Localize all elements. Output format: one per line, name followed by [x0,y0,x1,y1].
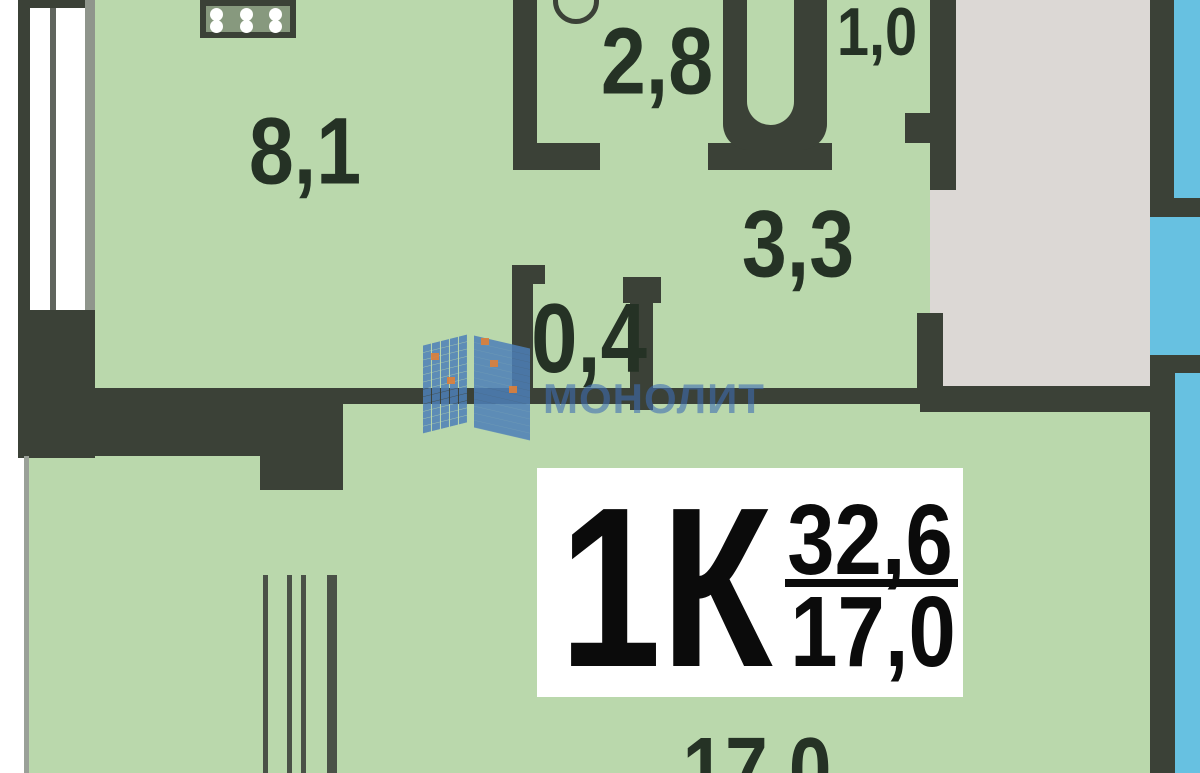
monolit-logo-accent [509,386,517,393]
right-wall-cap-top [1170,198,1200,217]
wardrobe-line [263,575,268,773]
closet-left-cap [512,265,545,284]
left-outer-wall-thin [24,456,29,773]
monolit-logo-accent [431,353,439,360]
vestibule-bottom-wall [920,386,1174,412]
monolit-logo [474,336,530,441]
wardrobe-line [287,575,292,773]
window-glass-line [50,8,56,310]
wc-right-wall [930,0,956,190]
wardrobe-line [327,575,337,773]
vestibule-door-jamb [917,313,943,390]
bathtub-icon [723,0,827,150]
watermark-text: МОНОЛИТ [543,378,765,420]
wardrobe-line [301,575,306,773]
apartment-type-label: 1К [560,474,773,702]
wc-area-label: 1,0 [837,0,917,66]
wall-pillar [260,456,343,490]
living-area-value: 17,0 [790,582,955,682]
wc-door-jamb [905,113,933,143]
stove-icon [200,0,296,38]
kitchen-area-label: 8,1 [249,105,361,200]
floor-plan: 8,1 2,8 1,0 3,3 0,4 17,0 МОНОЛИТ 1К 32,6… [0,0,1200,773]
kitchen-living-wall [22,388,343,456]
window-outer-frame [18,0,30,312]
right-outer-wall-bottom [1150,355,1175,773]
total-area-value: 32,6 [787,490,952,590]
bathroom-area-label: 2,8 [601,15,713,110]
right-outer-wall-top [1150,0,1174,217]
closet-area-label: 0,4 [531,289,647,387]
window-inner-jamb [85,0,95,312]
right-wall-cap-bottom [1174,355,1200,373]
window [30,8,85,310]
monolit-logo-accent [490,360,498,367]
hallway-area-label: 3,3 [742,198,854,293]
bathtub-inner [747,0,794,125]
vestibule-area [930,0,1152,390]
bathroom-bottom-wall-left [513,143,600,170]
living-area-label: 17,0 [683,725,832,773]
apartment-info-box: 1К 32,6 17,0 [537,468,963,697]
monolit-logo-accent [447,377,455,384]
monolit-logo [423,335,467,434]
monolit-logo-accent [481,338,489,345]
